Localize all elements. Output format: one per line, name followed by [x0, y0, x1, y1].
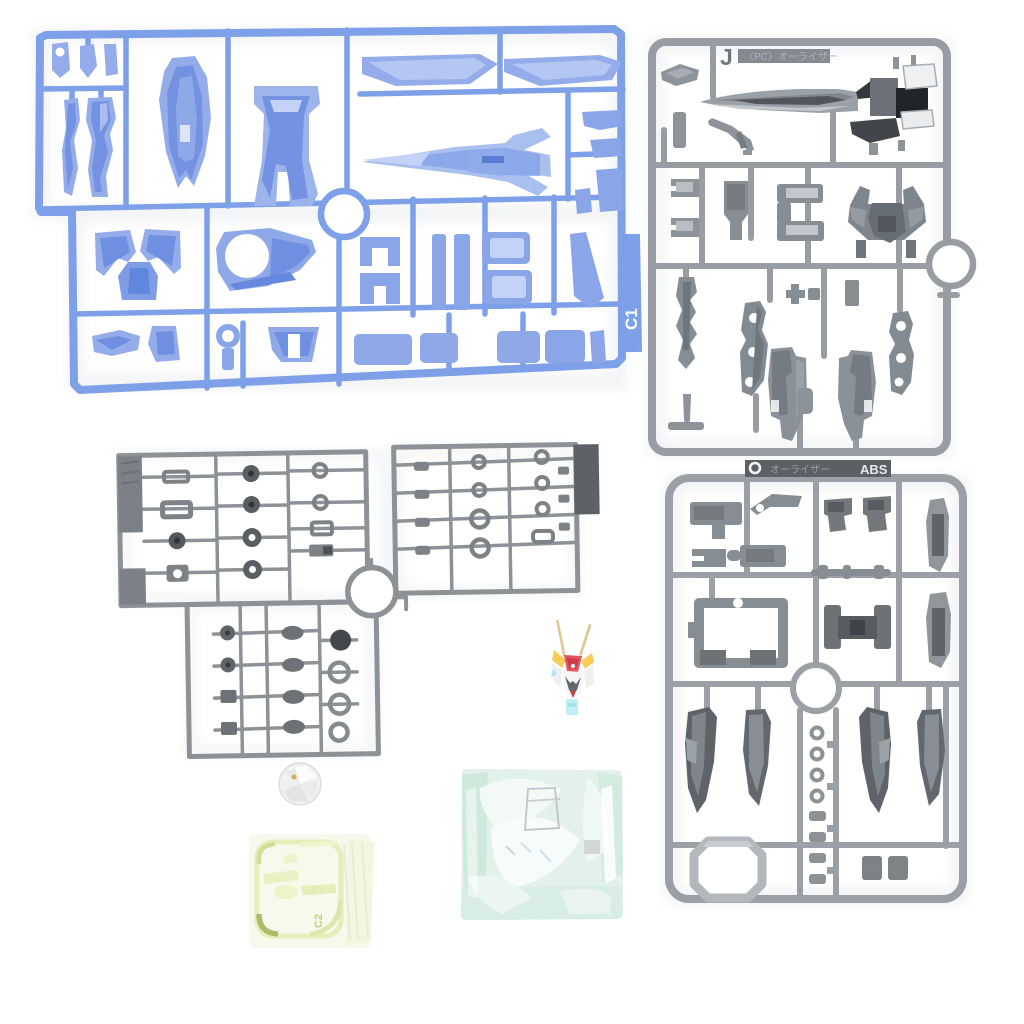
svg-text:J: J — [720, 44, 733, 70]
svg-text:オーライザー: オーライザー — [770, 464, 830, 476]
svg-text:C1: C1 — [622, 308, 641, 330]
svg-text:ABS: ABS — [860, 462, 888, 477]
svg-text:〈PC〉オーライザー: 〈PC〉オーライザー — [744, 51, 838, 63]
svg-text:C2: C2 — [313, 914, 325, 928]
